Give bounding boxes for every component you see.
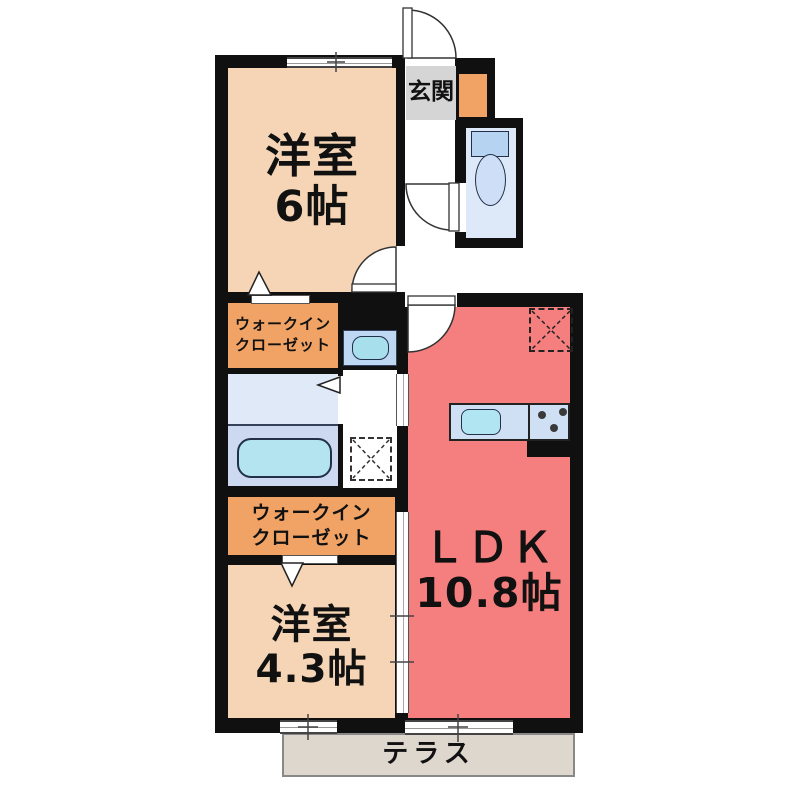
closet-arrow-down [281,563,303,586]
ldk-door-arc [408,305,455,352]
terrace-name: テラス [382,740,474,769]
bedroom6-size: 6帖 [275,183,350,231]
ldk-door-leaf [408,296,455,305]
label-entrance: 玄関 [406,66,456,120]
laundry-x [353,440,389,478]
entrance-name: 玄関 [408,80,454,106]
wic-lower-line1: ウォークイン [251,503,371,524]
symbols-overlay [0,0,800,800]
refrigerator-x [532,311,570,349]
bedroom6-name: 洋室 [265,131,359,183]
toilet-door-arc [406,184,452,230]
entrance-door-leaf [403,8,412,58]
window-tick [327,52,345,72]
bedroom43-name: 洋室 [271,603,353,648]
closet-arrow-up [248,272,271,295]
ldk-name: ＬＤＫ [423,524,555,571]
toilet-door-leaf [449,183,459,231]
wic-lower-line2: クローゼット [251,528,371,549]
bath-door-arrow-left [318,377,340,393]
wic-upper-line2: クローゼット [235,337,331,354]
entrance-door-arc [408,10,456,58]
wic-upper-line1: ウォークイン [235,316,331,333]
bedroom6-door-leaf [352,284,396,292]
label-bedroom6: 洋室 6帖 [228,122,396,240]
ldk-size: 10.8帖 [415,571,562,617]
label-ldk: ＬＤＫ 10.8帖 [408,500,570,640]
bedroom43-size: 4.3帖 [255,648,367,692]
floorplan-canvas: 洋室 6帖 玄関 ウォークイン クローゼット ウォークイン クローゼット 洋室 … [0,0,800,800]
label-wic-lower: ウォークイン クローゼット [228,499,395,553]
label-terrace: テラス [282,733,575,777]
label-bedroom43: 洋室 4.3帖 [228,588,395,706]
label-wic-upper: ウォークイン クローゼット [228,306,338,364]
